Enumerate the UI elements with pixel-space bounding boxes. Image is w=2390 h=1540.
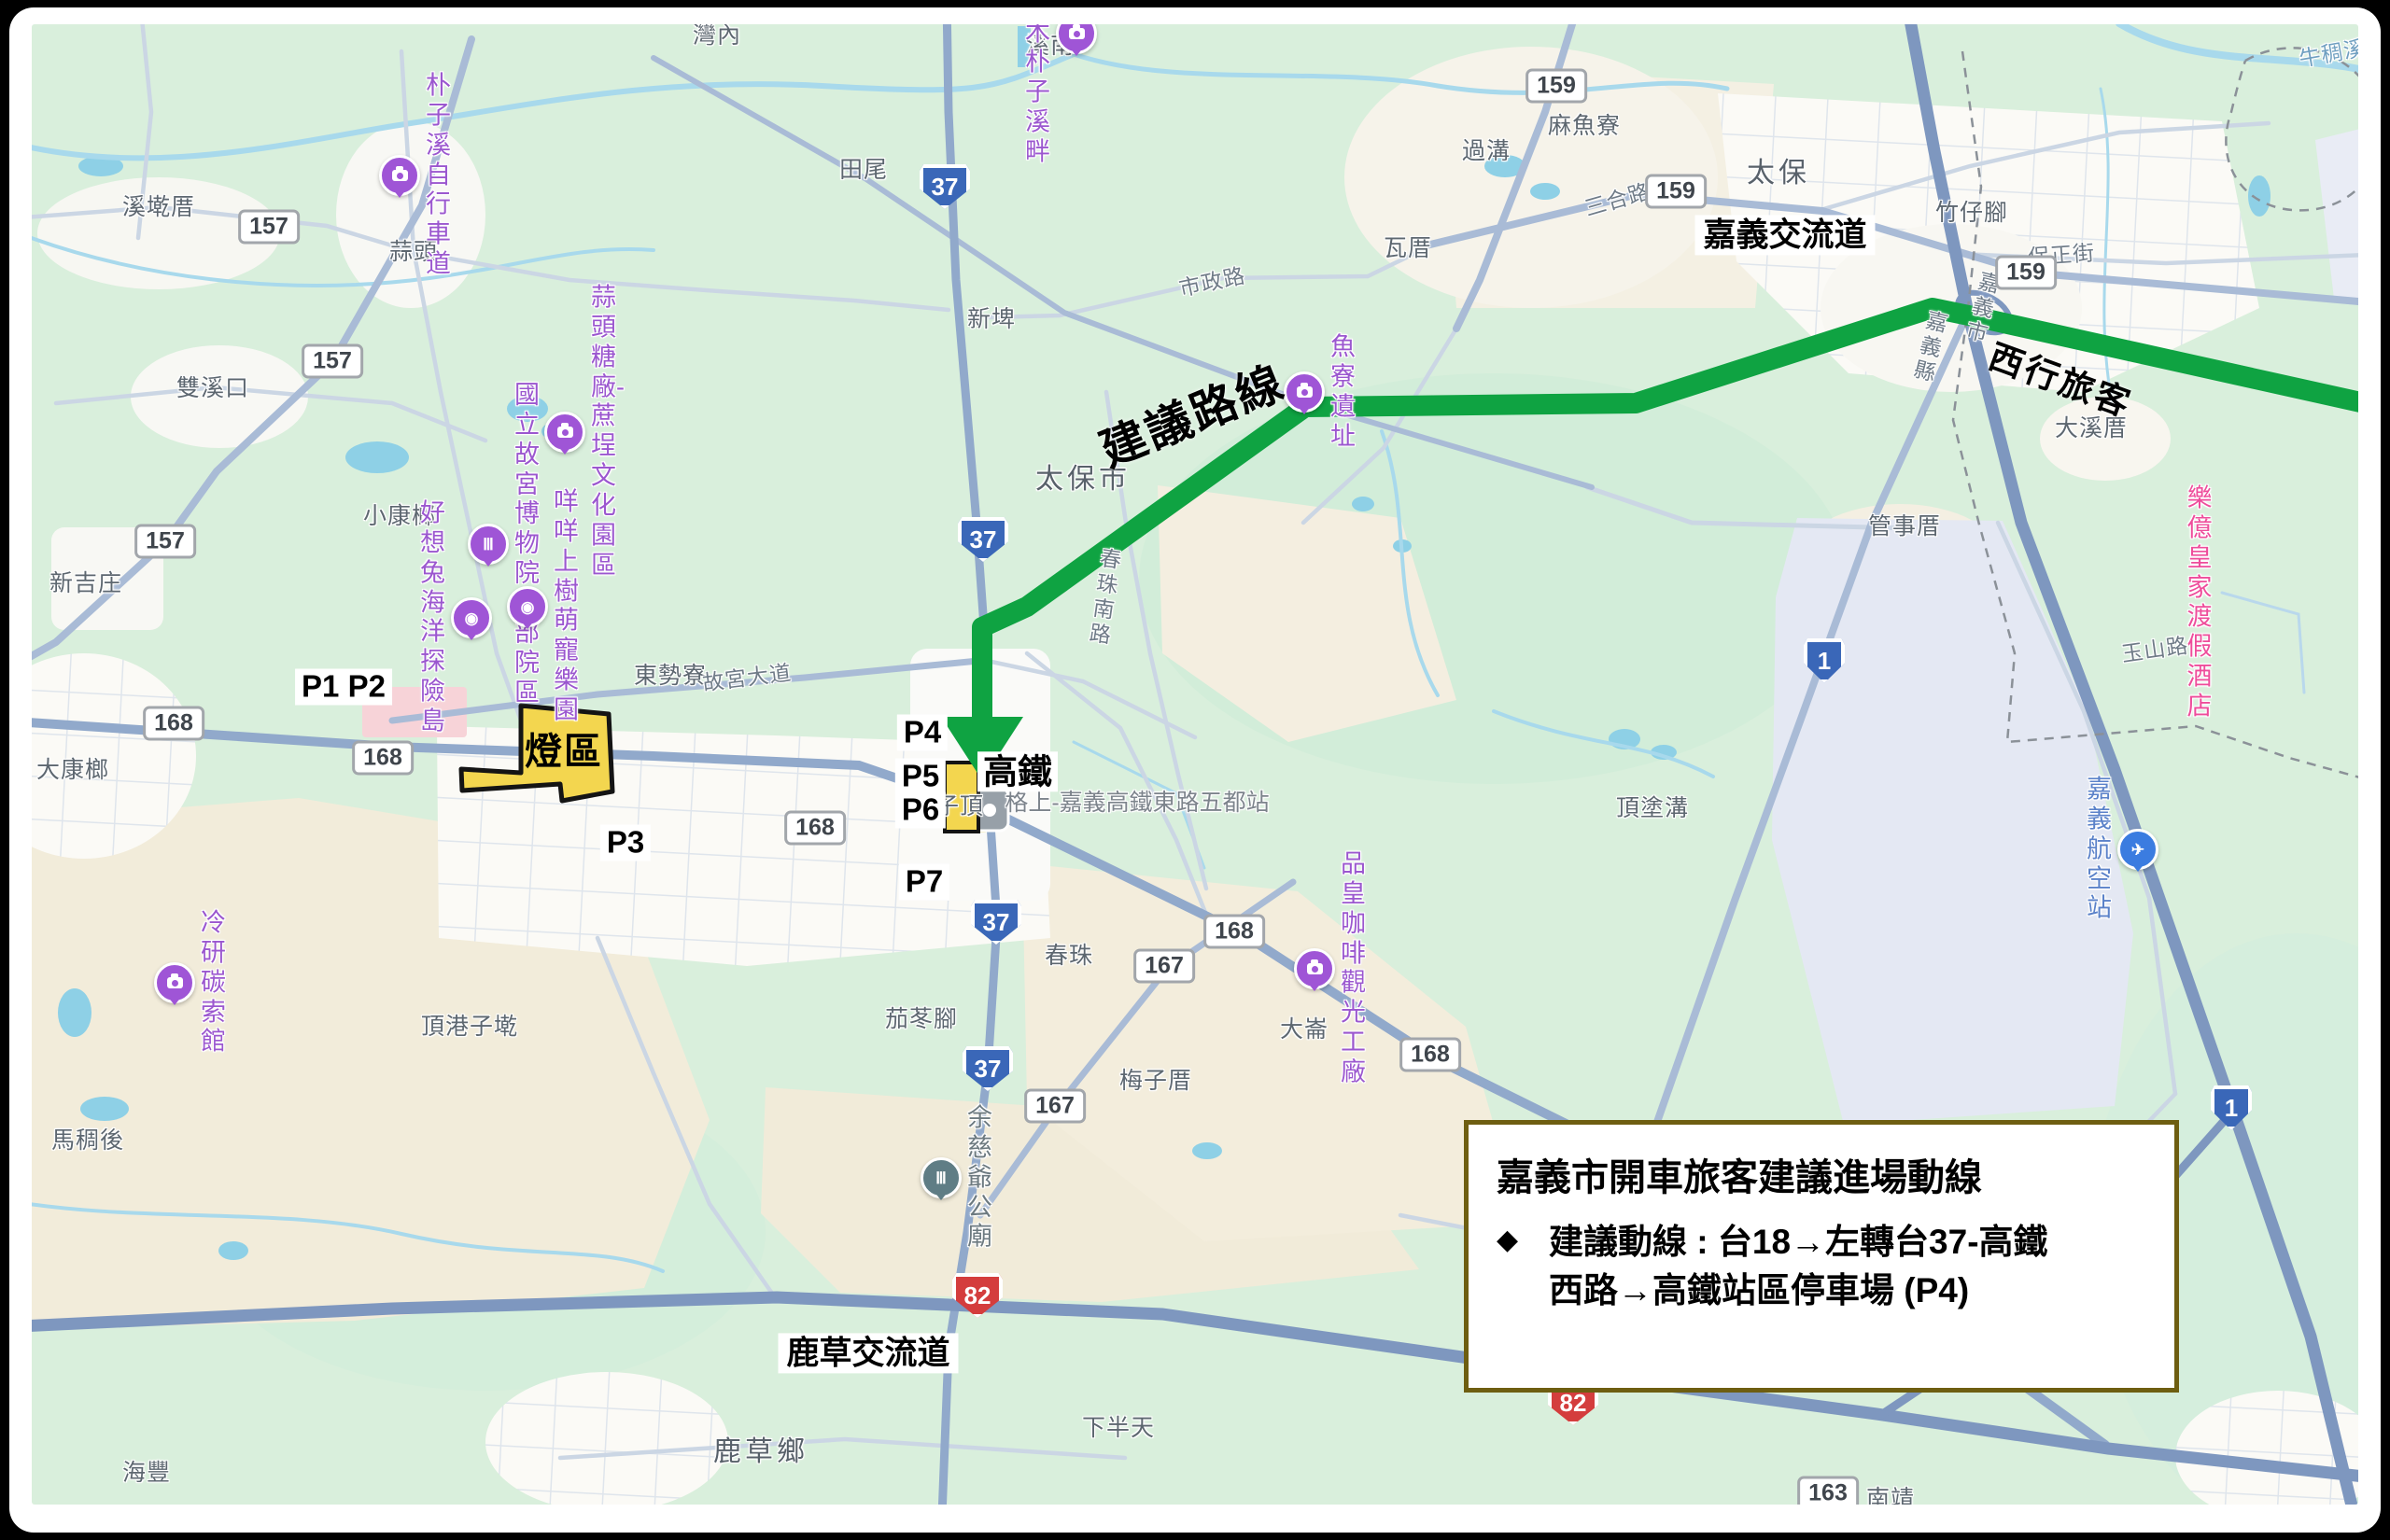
slide-frame: 溪墘厝蒜頭雙溪口新吉庄小康榔大康榔灣內田尾溪南新埤過溝麻魚寮太保瓦厝竹仔腳保正街…	[9, 7, 2381, 1533]
info-box-line2: 西路→高鐵站區停車場 (P4)	[1549, 1271, 1969, 1309]
airport-area	[1772, 518, 2133, 1125]
route-info-box: 嘉義市開車旅客建議進場動線 ◆ 建議動線 : 台18→左轉台37-高鐵 西路→高…	[1464, 1120, 2179, 1393]
map-world: 溪墘厝蒜頭雙溪口新吉庄小康榔大康榔灣內田尾溪南新埤過溝麻魚寮太保瓦厝竹仔腳保正街…	[32, 24, 2358, 1505]
info-box-title: 嘉義市開車旅客建議進場動線	[1497, 1147, 2150, 1201]
info-box-line1: 建議動線 : 台18→左轉台37-高鐵	[1549, 1223, 2048, 1261]
lavender-strip	[2315, 121, 2358, 308]
diamond-bullet-icon: ◆	[1497, 1218, 1549, 1256]
map[interactable]: 溪墘厝蒜頭雙溪口新吉庄小康榔大康榔灣內田尾溪南新埤過溝麻魚寮太保瓦厝竹仔腳保正街…	[32, 24, 2358, 1505]
info-box-bullet-row: ◆ 建議動線 : 台18→左轉台37-高鐵 西路→高鐵站區停車場 (P4)	[1497, 1218, 2150, 1315]
info-box-text: 建議動線 : 台18→左轉台37-高鐵 西路→高鐵站區停車場 (P4)	[1549, 1218, 2048, 1315]
hsr-parking-rect	[945, 763, 978, 832]
